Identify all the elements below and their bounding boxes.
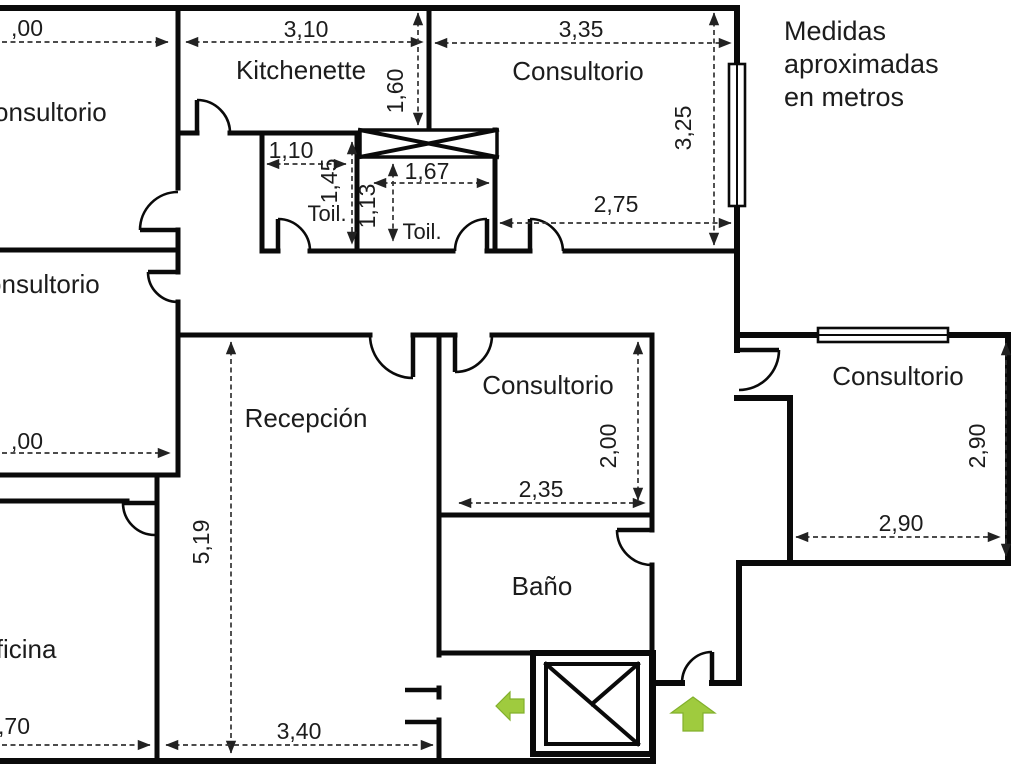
room-label-consultorio-mid-left: Consultorio <box>0 269 100 299</box>
room-label-consultorio-top-left: Consultorio <box>0 97 107 127</box>
duct-crossed-box-icon <box>360 130 497 157</box>
dim-cr-height: 2,90 <box>964 424 990 469</box>
dim-ctr-height: 3,25 <box>670 106 696 151</box>
room-label-oficina: Oficina <box>0 634 57 664</box>
room-label-recepcion: Recepción <box>245 403 368 433</box>
note-line-3: en metros <box>784 82 904 112</box>
dim-ctr-width-bottom: 2,75 <box>594 191 639 217</box>
room-label-consultorio-top-right: Consultorio <box>512 56 644 86</box>
doors <box>123 100 779 722</box>
dim-toil-right-width: 1,67 <box>405 158 450 184</box>
window-icon <box>729 64 745 206</box>
room-label-kitchenette: Kitchenette <box>236 55 366 85</box>
note-line-1: Medidas <box>784 16 886 46</box>
entrance-up-arrow-icon <box>671 697 715 731</box>
dim-toil-right-depth: 1,13 <box>354 184 380 229</box>
room-label-consultorio-center: Consultorio <box>482 370 614 400</box>
dim-c2-width: ,00 <box>11 428 43 454</box>
elevator-icon <box>533 653 652 754</box>
dim-toil-left-width: 1,10 <box>269 137 314 163</box>
dim-ctr-width-top: 3,35 <box>559 16 604 42</box>
dim-recepcion-height: 5,19 <box>188 520 214 565</box>
dim-cc-height: 2,00 <box>595 424 621 469</box>
dim-c1-width: ,00 <box>11 15 43 41</box>
walls-interior <box>0 8 737 761</box>
room-label-toilet-left: Toil. <box>307 201 346 226</box>
note-line-2: aproximadas <box>784 49 939 79</box>
dim-oficina-width: ,70 <box>0 713 30 739</box>
dim-cc-width: 2,35 <box>519 476 564 502</box>
measurement-note: Medidas aproximadas en metros <box>784 16 939 112</box>
dim-recepcion-width: 3,40 <box>277 718 322 744</box>
dim-kitchenette-depth: 1,60 <box>382 69 408 114</box>
exit-left-arrow-icon <box>496 692 524 720</box>
dim-kitchenette-width: 3,10 <box>284 16 329 42</box>
room-label-toilet-right: Toil. <box>402 219 441 244</box>
floor-plan: ,00 3,10 3,35 1,60 3,25 2,75 1,10 1,45 1… <box>0 0 1024 768</box>
dim-cr-width: 2,90 <box>879 510 924 536</box>
dim-toil-left-depth: 1,45 <box>316 159 342 204</box>
window-icon <box>818 328 948 342</box>
room-label-bano: Baño <box>512 571 573 601</box>
room-label-consultorio-right: Consultorio <box>832 361 964 391</box>
